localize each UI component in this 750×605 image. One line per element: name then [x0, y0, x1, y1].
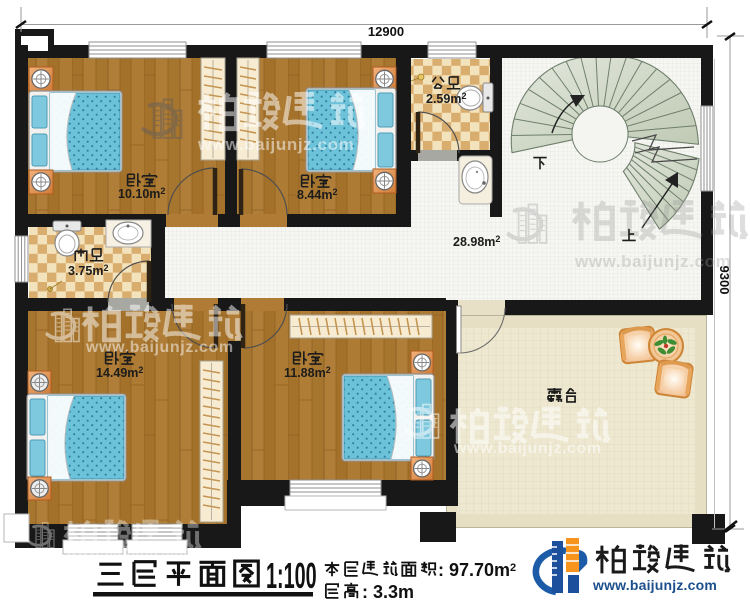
svg-text:8.44m2: 8.44m2 [297, 187, 337, 202]
svg-text:11.88m2: 11.88m2 [284, 365, 331, 380]
svg-text:: 97.70m2: : 97.70m2 [438, 560, 516, 580]
svg-text:3.75m2: 3.75m2 [68, 263, 108, 278]
svg-text:www.baijunjz.com: www.baijunjz.com [574, 252, 731, 271]
svg-text:12900: 12900 [368, 24, 404, 39]
svg-text:www.baijunjz.com: www.baijunjz.com [453, 440, 602, 457]
svg-text:1:100: 1:100 [266, 557, 317, 597]
svg-text:10.10m2: 10.10m2 [118, 186, 165, 201]
svg-text:28.98m2: 28.98m2 [453, 234, 500, 249]
svg-text:www.baijunjz.com: www.baijunjz.com [197, 135, 354, 154]
svg-text:www.baijunjz.com: www.baijunjz.com [592, 577, 717, 593]
svg-text:: 3.3m: : 3.3m [362, 582, 414, 602]
svg-text:14.49m2: 14.49m2 [96, 365, 143, 380]
svg-text:2.59m2: 2.59m2 [426, 91, 466, 106]
svg-text:www.baijunjz.com: www.baijunjz.com [65, 543, 196, 559]
svg-text:www.baijunjz.com: www.baijunjz.com [85, 339, 234, 356]
